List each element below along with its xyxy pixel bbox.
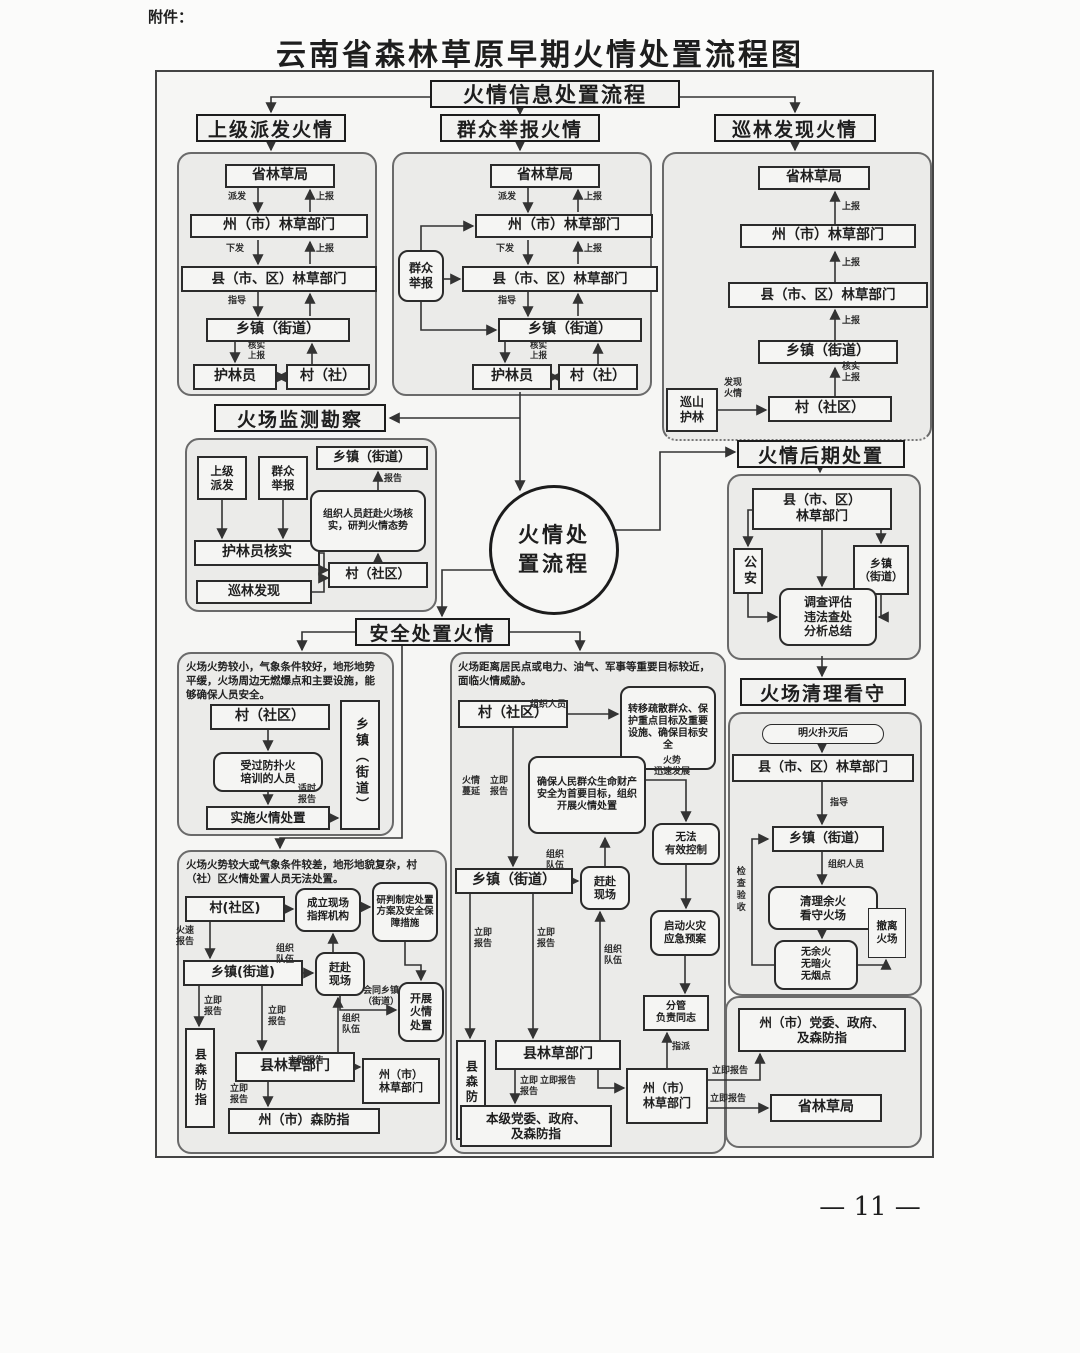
edge-label: 上报 [530,351,547,361]
header-dispatch: 上级派发火情 [196,114,346,142]
header-report: 群众举报火情 [440,114,600,142]
edge-label: 适时 报告 [298,784,316,806]
header-cleanup: 火场清理看守 [740,678,906,706]
edge-label: 立即 报告 [490,776,508,798]
edge-label: 上报 [584,244,602,255]
header-cleanup-label: 火场清理看守 [760,679,886,706]
header-patrol-label: 巡林发现火情 [732,115,858,142]
node-final-province: 省林草局 [770,1094,882,1122]
node-patrol-town: 乡镇（街道） [758,340,898,364]
condition-threat: 火场距离居民点或电力、油气、军事等重要目标较近，面临火情威胁。 [458,660,714,688]
node-post-investigate: 调查评估 违法查处 分析总结 [779,588,877,646]
node-monitor-upper-dispatch: 上级 派发 [197,456,247,500]
node-report-village: 村（社） [558,364,638,390]
node-monitor-ranger-verify: 护林员核实 [194,540,320,566]
header-patrol: 巡林发现火情 [714,114,876,142]
node-cleanup-after-extinguish: 明火扑灭后 [762,724,884,744]
edge-label: 报告 [384,474,402,485]
node-safety1-dispose: 实施火情处置 [206,806,330,830]
node-cleanup-clear-embers: 清理余火 看守火场 [768,886,878,930]
page-title: 云南省森林草原早期火情处置流程图 [240,30,840,74]
node-safety2-state-fireprev: 州（市）森防指 [228,1108,380,1134]
edge-label: 组织 队伍 [276,944,294,966]
edge-label: 下发 [226,244,244,255]
edge-label: 派发 [498,192,516,203]
header-post: 火情后期处置 [737,440,905,468]
edge-label: 上报 [248,351,265,361]
header-dispatch-label: 上级派发火情 [208,115,334,142]
node-safety3-town: 乡镇（街道） [455,868,573,894]
edge-label: 组织人员 [828,860,864,871]
node-monitor-organize: 组织人员赶赴火场核实，研判火情态势 [310,490,426,552]
edge-label: 核实 [530,341,547,351]
header-post-label: 火情后期处置 [758,441,884,468]
condition-small-fire: 火场火势较小，气象条件较好，地形地势平缓，火场周边无燃爆点和主要设施，能够确保人… [186,660,382,703]
node-cleanup-no-embers: 无余火 无暗火 无烟点 [774,940,858,990]
edge-label: 检查验收 [734,866,745,914]
node-monitor-patrol-found: 巡林发现 [196,580,312,604]
page-number: — 11 — [790,1192,950,1222]
node-cleanup-town: 乡镇（街道） [772,826,884,852]
edge-label: 指派 [672,1042,690,1053]
header-report-label: 群众举报火情 [457,115,583,142]
edge-label: 上报 [842,316,860,327]
edge-label: 上报 [316,192,334,203]
edge-label: 火情 蔓延 [462,776,480,798]
node-safety2-village: 村(社区) [185,896,285,922]
edge-label: 指导 [228,296,246,307]
edge-label: 组织人员 [530,700,566,711]
node-safety3-county-forestry: 县林草部门 [495,1040,621,1070]
edge-label: 核实 上报 [842,362,860,384]
attachment-label: 附件： [148,6,193,27]
header-info-flow-label: 火情信息处置流程 [463,79,647,109]
edge-label: 会同乡镇 （街道） [352,986,410,1008]
node-patrol-village: 村（社区） [768,396,892,422]
edge-label: 立即报告 [712,1066,748,1077]
node-cleanup-leave-site: 撤离 火场 [868,908,906,958]
edge-label: 立即报告 [540,1076,576,1087]
node-monitor-village: 村（社区） [328,562,428,588]
header-info-flow: 火情信息处置流程 [430,80,680,108]
edge-label: 核实 [248,341,265,351]
edge-label: 火势 迅速发展 [648,756,696,778]
node-monitor-mass-report: 群众 举报 [258,456,308,500]
edge-label: 组织 队伍 [604,945,622,967]
edge-label: 上报 [842,202,860,213]
edge-label: 派发 [228,192,246,203]
header-safety: 安全处置火情 [355,618,510,646]
node-patrol-province: 省林草局 [758,166,870,190]
node-patrol-ranger: 巡山 护林 [666,388,718,432]
node-report-town: 乡镇（街道） [498,318,642,342]
node-safety3-uncontrollable: 无法 有效控制 [652,823,720,865]
node-safety3-leader: 分管 负责同志 [643,995,709,1031]
node-dispatch-ranger: 护林员 [193,364,277,390]
edge-label: 立即报告 [288,1056,324,1067]
node-dispatch-province: 省林草局 [225,164,335,188]
node-safety2-state-forestry: 州（市） 林草部门 [362,1058,440,1104]
header-safety-label: 安全处置火情 [369,619,495,646]
header-monitor: 火场监测勘察 [214,404,386,432]
edge-label: 火速 报告 [176,926,194,948]
node-dispatch-town: 乡镇（街道） [206,318,350,342]
header-monitor-label: 火场监测勘察 [237,405,363,432]
node-patrol-state: 州（市）林草部门 [740,224,916,248]
node-safety2-command: 成立现场 指挥机构 [295,888,361,932]
node-patrol-county: 县（市、区）林草部门 [728,282,928,308]
edge-label: 立即 报告 [537,928,555,950]
node-safety3-state-forestry: 州（市） 林草部门 [626,1068,708,1124]
node-dispatch-village: 村（社） [286,364,370,390]
edge-label: 上报 [584,192,602,203]
node-dispatch-state: 州（市）林草部门 [190,214,368,238]
edge-label: 上报 [316,244,334,255]
node-monitor-town: 乡镇（街道） [316,446,428,470]
edge-label: 立即 报告 [474,928,492,950]
node-safety1-town: 乡镇（街道） [340,700,380,830]
node-safety1-village: 村（社区） [210,704,330,730]
center-circle-fire-disposal-process: 火情处 置流程 [489,485,619,615]
node-report-informant: 群众 举报 [398,250,444,302]
edge-label: 组织 队伍 [546,850,564,872]
edge-label: 立即报告 [710,1094,746,1105]
edge-label: 指导 [498,296,516,307]
node-final-state-party: 州（市）党委、政府、 及森防指 [738,1008,906,1052]
node-report-ranger: 护林员 [472,364,552,390]
node-dispatch-county: 县（市、区）林草部门 [181,266,377,292]
edge-label: 下发 [496,244,514,255]
edge-label: 组织 队伍 [342,1014,360,1036]
node-report-state: 州（市）林草部门 [475,214,653,238]
node-cleanup-county: 县（市、区）林草部门 [732,754,914,782]
node-safety3-ensure: 确保人民群众生命财产安全为首要目标，组织开展火情处置 [528,756,646,834]
node-safety3-local-party: 本级党委、政府、 及森防指 [460,1105,612,1147]
edge-label: 立即 报告 [230,1084,248,1106]
edge-label: 发现 火情 [724,378,742,400]
node-safety2-plan: 研判制定处置方案及安全保障措施 [372,882,438,942]
edge-label: 立即 报告 [520,1076,538,1098]
edge-label: 立即 报告 [268,1006,286,1028]
node-post-police: 公安 [733,548,763,594]
node-report-county: 县（市、区）林草部门 [462,266,658,292]
node-report-province: 省林草局 [490,164,600,188]
edge-label: 立即 报告 [204,996,222,1018]
edge-label: 上报 [842,258,860,269]
node-safety3-rush: 赶赴 现场 [580,866,630,910]
node-post-county: 县（市、区） 林草部门 [752,488,892,530]
node-safety3-launch-plan: 启动火灾 应急预案 [650,910,720,956]
node-safety2-county-fireprev: 县森防指 [185,1028,215,1128]
edge-label: 指导 [830,798,848,809]
